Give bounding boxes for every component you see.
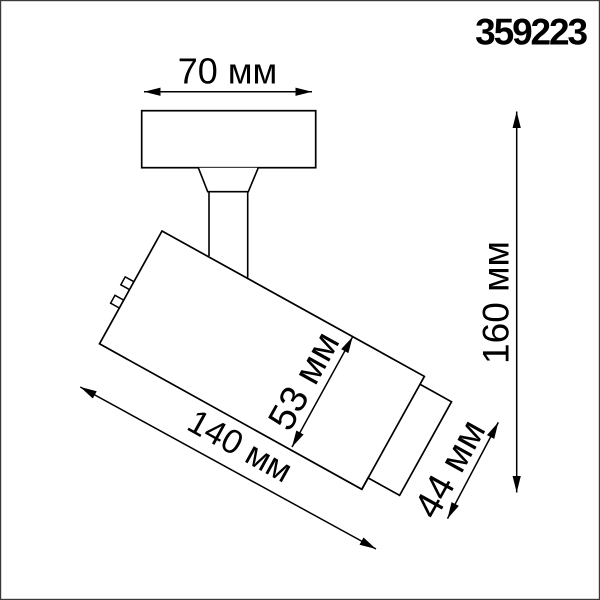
- svg-text:160 мм: 160 мм: [476, 241, 517, 364]
- svg-text:70 мм: 70 мм: [178, 51, 278, 92]
- svg-text:359223: 359223: [475, 12, 587, 53]
- svg-text:44 мм: 44 мм: [407, 413, 495, 525]
- svg-text:53 мм: 53 мм: [261, 325, 349, 437]
